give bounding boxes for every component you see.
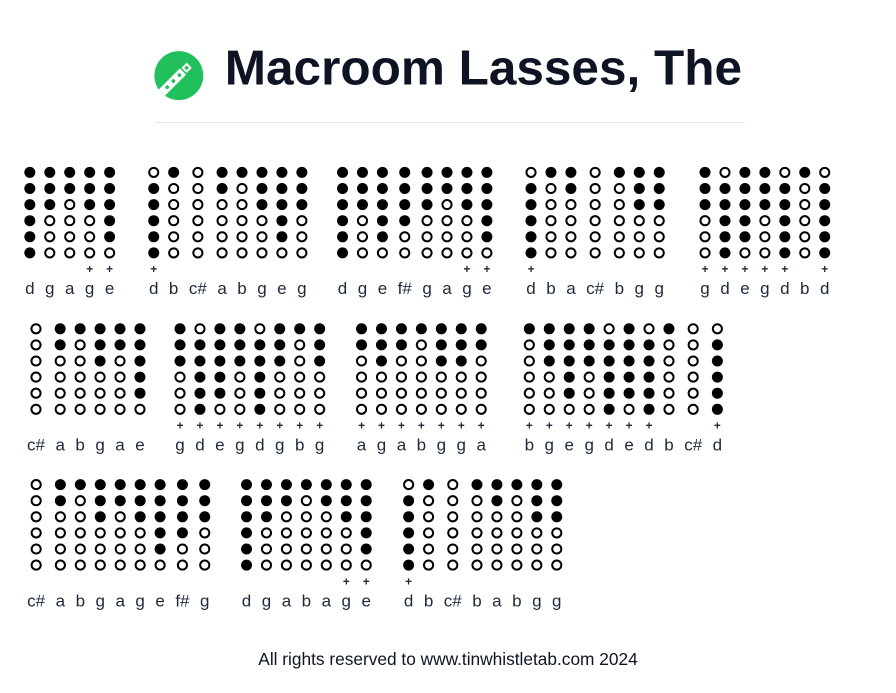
svg-text:+: + <box>197 419 204 433</box>
svg-text:+: + <box>256 419 263 433</box>
svg-text:+: + <box>714 419 721 433</box>
svg-text:+: + <box>358 419 365 433</box>
svg-text:b: b <box>424 591 433 610</box>
svg-text:d: d <box>713 435 722 454</box>
svg-text:+: + <box>722 262 729 276</box>
svg-text:+: + <box>586 419 593 433</box>
svg-text:All rights reserved to www.tin: All rights reserved to www.tinwhistletab… <box>258 649 638 669</box>
svg-text:b: b <box>512 591 521 610</box>
svg-text:+: + <box>483 262 490 276</box>
svg-text:+: + <box>177 419 184 433</box>
svg-text:+: + <box>316 419 323 433</box>
svg-text:c#: c# <box>27 435 46 454</box>
svg-text:+: + <box>296 419 303 433</box>
svg-text:a: a <box>115 591 125 610</box>
svg-text:b: b <box>169 279 178 298</box>
svg-text:e: e <box>277 279 286 298</box>
svg-text:+: + <box>606 419 613 433</box>
svg-text:a: a <box>282 591 292 610</box>
svg-text:+: + <box>378 419 385 433</box>
svg-text:e: e <box>624 435 633 454</box>
svg-text:d: d <box>780 279 789 298</box>
svg-text:d: d <box>820 279 829 298</box>
svg-text:g: g <box>235 435 244 454</box>
svg-text:g: g <box>545 435 554 454</box>
svg-text:+: + <box>343 574 350 588</box>
svg-text:+: + <box>418 419 425 433</box>
svg-text:b: b <box>75 435 84 454</box>
svg-text:d: d <box>242 591 251 610</box>
svg-text:a: a <box>492 591 502 610</box>
svg-text:g: g <box>700 279 709 298</box>
svg-text:g: g <box>315 435 324 454</box>
svg-text:d: d <box>644 435 653 454</box>
svg-text:+: + <box>566 419 573 433</box>
svg-text:g: g <box>342 591 351 610</box>
svg-text:e: e <box>482 279 491 298</box>
svg-text:g: g <box>552 591 561 610</box>
svg-text:a: a <box>322 591 332 610</box>
svg-text:g: g <box>760 279 769 298</box>
svg-text:+: + <box>761 262 768 276</box>
svg-text:b: b <box>615 279 624 298</box>
svg-text:e: e <box>215 435 224 454</box>
svg-text:b: b <box>472 591 481 610</box>
svg-text:g: g <box>200 591 209 610</box>
svg-text:+: + <box>463 262 470 276</box>
svg-text:+: + <box>86 262 93 276</box>
svg-text:b: b <box>76 591 85 610</box>
svg-text:g: g <box>358 279 367 298</box>
svg-text:f#: f# <box>398 279 413 298</box>
svg-text:b: b <box>664 435 673 454</box>
svg-text:a: a <box>566 279 576 298</box>
svg-text:b: b <box>800 279 809 298</box>
svg-text:b: b <box>295 435 304 454</box>
svg-text:a: a <box>476 435 486 454</box>
svg-text:+: + <box>626 419 633 433</box>
svg-text:+: + <box>150 262 157 276</box>
svg-text:g: g <box>377 435 386 454</box>
svg-text:+: + <box>458 419 465 433</box>
svg-text:g: g <box>85 279 94 298</box>
svg-text:d: d <box>195 435 204 454</box>
svg-text:+: + <box>526 419 533 433</box>
svg-text:e: e <box>135 435 144 454</box>
svg-text:d: d <box>604 435 613 454</box>
svg-text:+: + <box>781 262 788 276</box>
svg-text:c#: c# <box>444 591 463 610</box>
svg-text:g: g <box>297 279 306 298</box>
svg-text:b: b <box>302 591 311 610</box>
svg-text:a: a <box>65 279 75 298</box>
svg-text:d: d <box>25 279 34 298</box>
svg-text:c#: c# <box>27 591 46 610</box>
svg-text:a: a <box>357 435 367 454</box>
svg-text:a: a <box>397 435 407 454</box>
svg-text:g: g <box>275 435 284 454</box>
svg-text:+: + <box>646 419 653 433</box>
svg-text:+: + <box>405 574 412 588</box>
svg-text:c#: c# <box>684 435 703 454</box>
svg-text:d: d <box>526 279 535 298</box>
svg-text:d: d <box>255 435 264 454</box>
svg-text:e: e <box>361 591 370 610</box>
svg-text:e: e <box>105 279 114 298</box>
svg-text:g: g <box>457 435 466 454</box>
svg-text:g: g <box>95 435 104 454</box>
svg-text:g: g <box>437 435 446 454</box>
svg-text:c#: c# <box>586 279 605 298</box>
svg-text:b: b <box>417 435 426 454</box>
svg-text:g: g <box>422 279 431 298</box>
svg-text:c#: c# <box>189 279 208 298</box>
svg-text:+: + <box>438 419 445 433</box>
svg-text:g: g <box>654 279 663 298</box>
svg-text:g: g <box>532 591 541 610</box>
svg-text:+: + <box>478 419 485 433</box>
svg-text:+: + <box>398 419 405 433</box>
svg-text:b: b <box>525 435 534 454</box>
svg-text:g: g <box>45 279 54 298</box>
svg-text:+: + <box>363 574 370 588</box>
svg-text:+: + <box>276 419 283 433</box>
svg-text:+: + <box>528 262 535 276</box>
svg-text:g: g <box>262 591 271 610</box>
svg-text:+: + <box>702 262 709 276</box>
svg-text:a: a <box>442 279 452 298</box>
svg-text:+: + <box>236 419 243 433</box>
svg-text:g: g <box>175 435 184 454</box>
svg-text:+: + <box>741 262 748 276</box>
svg-text:+: + <box>106 262 113 276</box>
svg-text:g: g <box>584 435 593 454</box>
svg-text:+: + <box>216 419 223 433</box>
svg-text:d: d <box>404 591 413 610</box>
svg-text:a: a <box>115 435 125 454</box>
svg-text:e: e <box>564 435 573 454</box>
svg-text:g: g <box>257 279 266 298</box>
svg-text:d: d <box>149 279 158 298</box>
svg-text:f#: f# <box>175 591 190 610</box>
svg-text:e: e <box>155 591 164 610</box>
svg-text:e: e <box>378 279 387 298</box>
svg-text:a: a <box>217 279 227 298</box>
svg-text:+: + <box>821 262 828 276</box>
svg-text:d: d <box>338 279 347 298</box>
svg-text:Macroom Lasses, The: Macroom Lasses, The <box>225 40 742 95</box>
svg-text:e: e <box>740 279 749 298</box>
svg-text:a: a <box>55 435 65 454</box>
svg-text:b: b <box>237 279 246 298</box>
svg-text:g: g <box>96 591 105 610</box>
svg-text:+: + <box>546 419 553 433</box>
svg-text:d: d <box>720 279 729 298</box>
svg-text:g: g <box>135 591 144 610</box>
svg-text:a: a <box>56 591 66 610</box>
svg-text:g: g <box>635 279 644 298</box>
svg-text:b: b <box>546 279 555 298</box>
svg-text:g: g <box>462 279 471 298</box>
